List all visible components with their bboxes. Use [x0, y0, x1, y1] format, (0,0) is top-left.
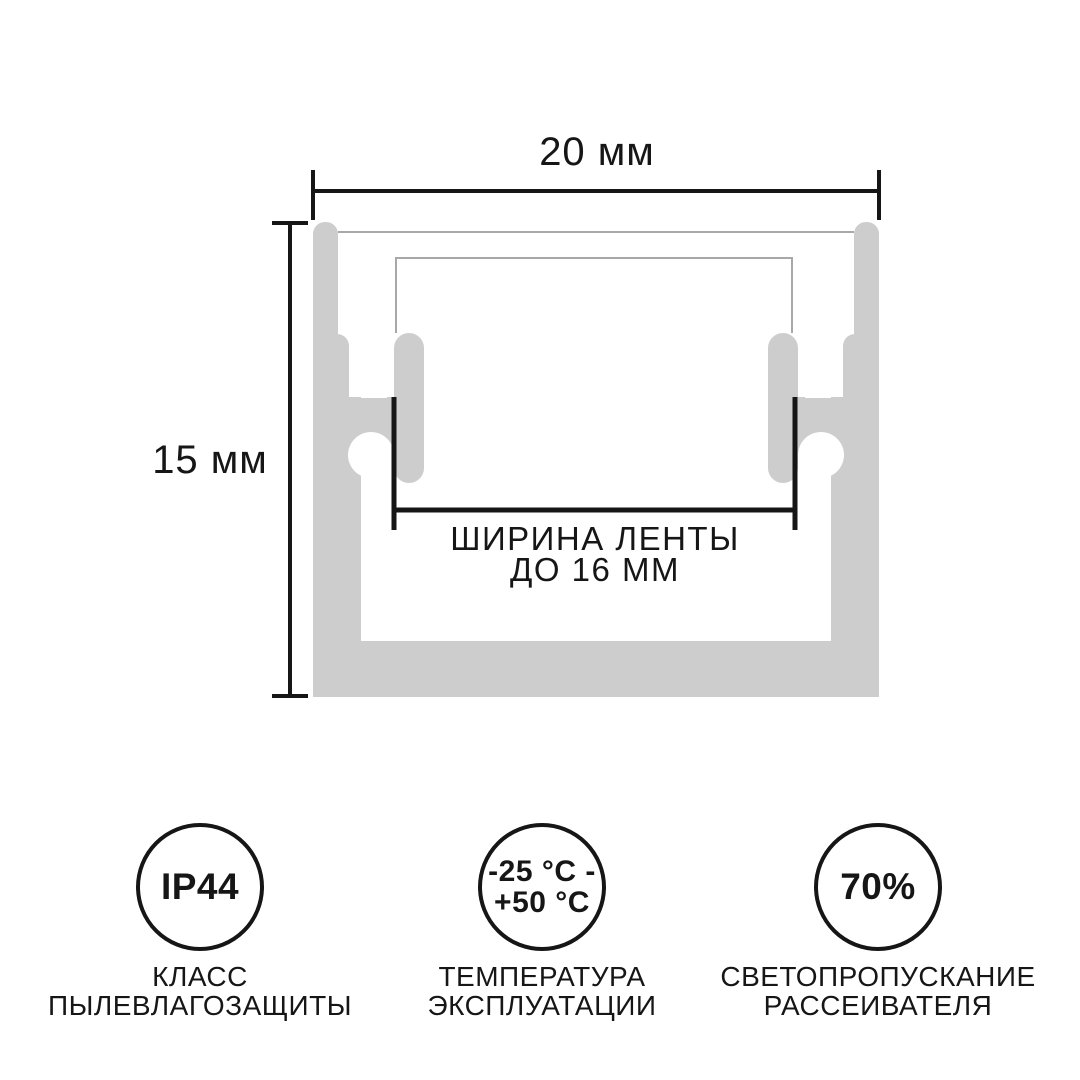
strip-width-label: ШИРИНА ЛЕНТЫ ДО 16 ММ	[394, 523, 796, 585]
led-profile-spec-infographic: 20 мм 15 мм ШИРИНА ЛЕНТЫ ДО 16 ММ IP44 К…	[0, 0, 1080, 1080]
strip-width-label-line2: ДО 16 ММ	[394, 554, 796, 585]
ip-rating-label-line2: ПЫЛЕВЛАГОЗАЩИТЫ	[48, 991, 352, 1020]
ip-rating-circle-icon: IP44	[136, 823, 264, 951]
diffuser-outline	[338, 232, 854, 333]
height-dimension-label: 15 мм	[110, 438, 310, 483]
profile-base-slab	[313, 641, 879, 697]
light-transmission-label-line2: РАССЕИВАТЕЛЯ	[720, 991, 1035, 1020]
spec-badges-row: IP44 КЛАСС ПЫЛЕВЛАГОЗАЩИТЫ -25 °C - +50 …	[0, 823, 1080, 1053]
temperature-value-line2: +50 °C	[494, 887, 590, 918]
ip-rating-label-line1: КЛАСС	[48, 962, 352, 991]
badge-operating-temperature: -25 °C - +50 °C ТЕМПЕРАТУРА ЭКСПЛУАТАЦИИ	[372, 823, 712, 1020]
temperature-value-line1: -25 °C -	[488, 856, 596, 887]
diffuser-inner-rect	[396, 258, 792, 333]
light-transmission-circle-icon: 70%	[814, 823, 942, 951]
light-transmission-value: 70%	[840, 867, 916, 908]
temperature-label-line1: ТЕМПЕРАТУРА	[427, 962, 656, 991]
profile-left-inner-tab	[394, 333, 424, 483]
right-ledge-notch	[805, 391, 831, 398]
left-ledge-notch	[361, 391, 387, 398]
badge-ip-rating: IP44 КЛАСС ПЫЛЕВЛАГОЗАЩИТЫ	[30, 823, 370, 1020]
strip-width-dimension	[392, 397, 797, 530]
ip-rating-label: КЛАСС ПЫЛЕВЛАГОЗАЩИТЫ	[48, 962, 352, 1020]
width-dimension	[313, 170, 879, 220]
temperature-circle-icon: -25 °C - +50 °C	[478, 823, 606, 951]
width-dimension-label: 20 мм	[447, 130, 747, 175]
light-transmission-label: СВЕТОПРОПУСКАНИЕ РАССЕИВАТЕЛЯ	[720, 962, 1035, 1020]
temperature-label-line2: ЭКСПЛУАТАЦИИ	[427, 991, 656, 1020]
temperature-label: ТЕМПЕРАТУРА ЭКСПЛУАТАЦИИ	[427, 962, 656, 1020]
strip-width-label-line1: ШИРИНА ЛЕНТЫ	[394, 523, 796, 554]
ip-rating-value: IP44	[161, 867, 239, 908]
badge-light-transmission: 70% СВЕТОПРОПУСКАНИЕ РАССЕИВАТЕЛЯ	[708, 823, 1048, 1020]
left-lower-cavity	[361, 455, 394, 641]
right-lower-cavity	[798, 455, 831, 641]
light-transmission-label-line1: СВЕТОПРОПУСКАНИЕ	[720, 962, 1035, 991]
